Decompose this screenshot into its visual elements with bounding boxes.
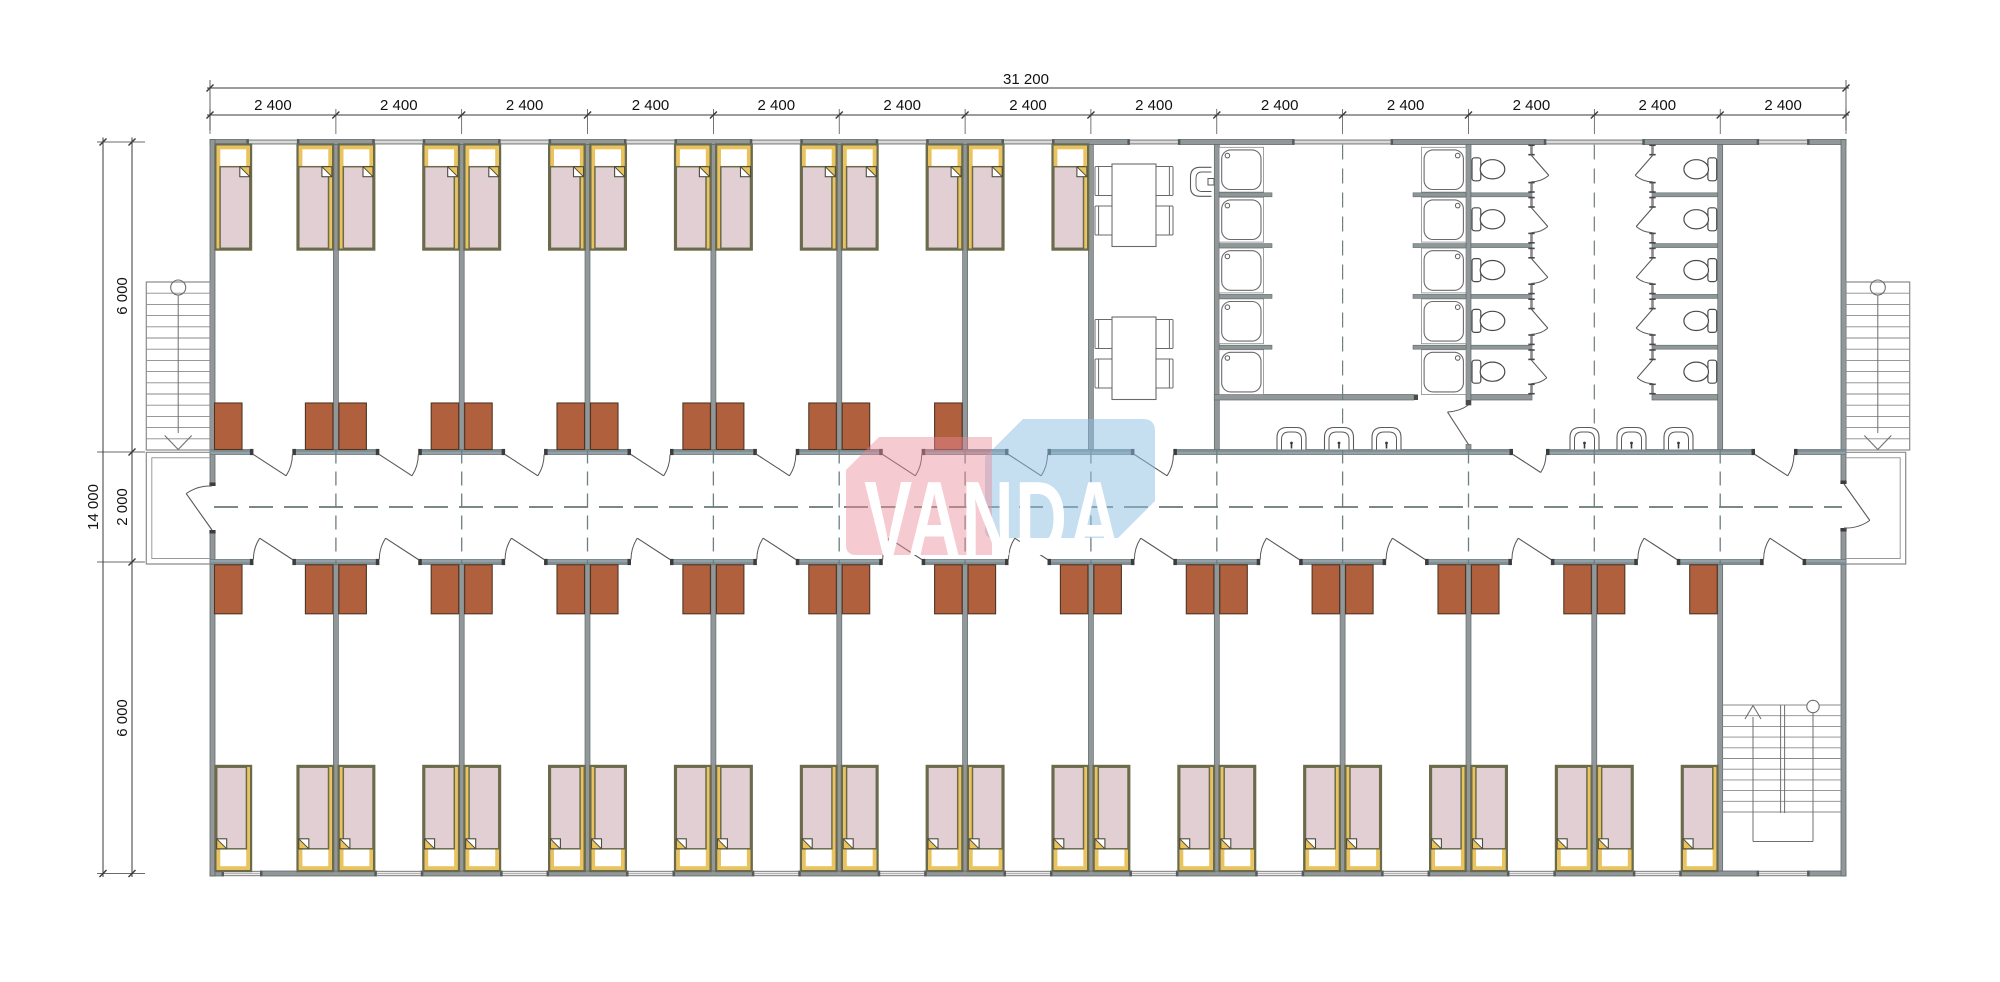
svg-text:2 400: 2 400 (883, 97, 921, 114)
svg-text:2 400: 2 400 (1261, 97, 1299, 114)
svg-text:2 400: 2 400 (1009, 97, 1047, 114)
svg-text:2 400: 2 400 (632, 97, 670, 114)
svg-text:VANDA: VANDA (864, 460, 1122, 578)
svg-text:31 200: 31 200 (1003, 71, 1049, 88)
svg-text:2 400: 2 400 (1387, 97, 1425, 114)
svg-text:2 400: 2 400 (254, 97, 292, 114)
svg-text:2 000: 2 000 (114, 488, 131, 526)
svg-text:2 400: 2 400 (1135, 97, 1173, 114)
svg-text:2 400: 2 400 (1639, 97, 1677, 114)
svg-text:2 400: 2 400 (758, 97, 796, 114)
svg-text:2 400: 2 400 (506, 97, 544, 114)
svg-text:14 000: 14 000 (85, 484, 102, 530)
svg-text:2 400: 2 400 (380, 97, 418, 114)
svg-text:6 000: 6 000 (114, 277, 131, 315)
svg-text:2 400: 2 400 (1513, 97, 1551, 114)
svg-text:6 000: 6 000 (114, 699, 131, 737)
svg-text:2 400: 2 400 (1764, 97, 1802, 114)
